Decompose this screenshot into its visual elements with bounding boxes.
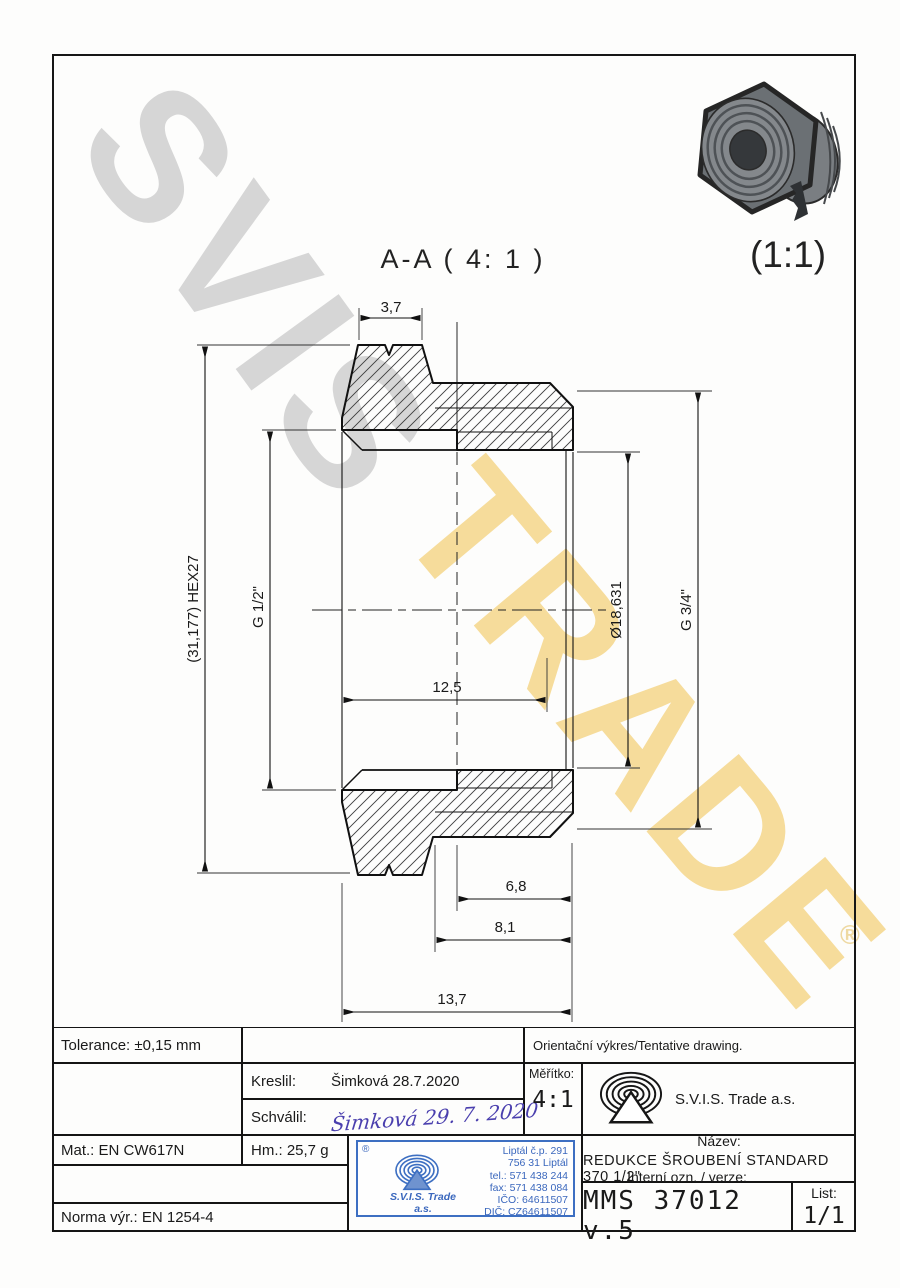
meritko-value: 4:1	[525, 1087, 581, 1113]
material-cell: Mat.: EN CW617N	[52, 1135, 242, 1165]
stamp-address-line: tel.: 571 438 244	[484, 1170, 568, 1182]
nazev-label: Název:	[697, 1133, 741, 1149]
schvalil-signature: Šimková 29. 7. 2020	[330, 1098, 539, 1137]
dim-top-width: 3,7	[381, 299, 402, 316]
company-name: S.V.I.S. Trade a.s.	[675, 1091, 795, 1108]
stamp-address-line: DIČ: CZ64611507	[484, 1206, 568, 1218]
list-label: List:	[811, 1185, 837, 1201]
kreslil-value: Šimková 28.7.2020	[331, 1073, 459, 1090]
interni-label: Interní ozn. / verze:	[627, 1169, 747, 1185]
kreslil-label: Kreslil:	[243, 1073, 331, 1090]
dim-thread-internal: G 1/2"	[250, 586, 267, 628]
mass-text: Hm.: 25,7 g	[243, 1142, 329, 1159]
meritko-cell: Měřítko: 4:1	[524, 1063, 582, 1135]
company-logo-icon	[599, 1070, 663, 1128]
section-material-bottom	[342, 770, 573, 875]
tolerance-text: Tolerance: ±0,15 mm	[53, 1037, 201, 1054]
kreslil-cell: Kreslil: Šimková 28.7.2020	[242, 1063, 524, 1099]
norma-cell: Norma výr.: EN 1254-4	[52, 1203, 348, 1232]
norma-text: Norma výr.: EN 1254-4	[53, 1209, 214, 1226]
dim-thread-external: G 3/4"	[678, 589, 695, 631]
stamp-address-line: fax: 571 438 084	[484, 1182, 568, 1194]
schvalil-label: Schválil:	[243, 1109, 331, 1126]
stamp-company-name: S.V.I.S. Trade	[390, 1191, 456, 1203]
material-text: Mat.: EN CW617N	[53, 1142, 184, 1159]
section-view-title: A-A ( 4: 1 )	[343, 244, 583, 275]
list-value: 1/1	[803, 1203, 845, 1229]
stamp-address-line: Liptál č.p. 291	[484, 1145, 568, 1157]
list-cell: List: 1/1	[792, 1182, 856, 1232]
stamp-address-line: 756 31 Liptál	[484, 1157, 568, 1169]
iso-view-part	[691, 84, 847, 221]
stamp-logo-icon	[374, 1154, 460, 1192]
mass-cell: Hm.: 25,7 g	[242, 1135, 348, 1165]
dim-bore-diameter: Ø18,631	[608, 581, 625, 639]
company-stamp: ® S.V.I.S. Trade a.s. Liptál č.p. 291 75…	[356, 1140, 575, 1217]
stamp-address: Liptál č.p. 291 756 31 Liptál tel.: 571 …	[484, 1145, 568, 1219]
stamp-address-line: IČO: 64611507	[484, 1194, 568, 1206]
tolerance-cell: Tolerance: ±0,15 mm	[52, 1027, 242, 1063]
interni-value: MMS 37012 v.5	[583, 1186, 791, 1246]
stamp-company-sub: a.s.	[414, 1203, 432, 1215]
dim-hex-height: (31,177) HEX27	[185, 555, 202, 663]
orientation-note-cell: Orientační výkres/Tentative drawing.	[524, 1027, 856, 1063]
dim-len-inner: 6,8	[506, 878, 527, 895]
empty-cell-bottom	[52, 1165, 348, 1203]
orientation-note-text: Orientační výkres/Tentative drawing.	[525, 1038, 743, 1053]
empty-cell-top	[242, 1027, 524, 1063]
dim-bore-depth: 12,5	[432, 679, 461, 696]
section-view	[312, 322, 610, 875]
stamp-registered-icon: ®	[362, 1144, 369, 1155]
company-cell: S.V.I.S. Trade a.s.	[582, 1063, 856, 1135]
section-material-top	[342, 345, 573, 450]
empty-cell-left	[52, 1063, 242, 1135]
drawing-sheet: SVIS TRADE ®	[0, 0, 900, 1288]
interni-cell: Interní ozn. / verze: MMS 37012 v.5	[582, 1182, 792, 1232]
dim-len-mid: 8,1	[495, 919, 516, 936]
dim-len-total: 13,7	[437, 991, 466, 1008]
iso-view-scale: (1:1)	[733, 234, 843, 276]
meritko-label: Měřítko:	[525, 1064, 581, 1081]
schvalil-cell: Schválil: Šimková 29. 7. 2020	[242, 1099, 524, 1135]
